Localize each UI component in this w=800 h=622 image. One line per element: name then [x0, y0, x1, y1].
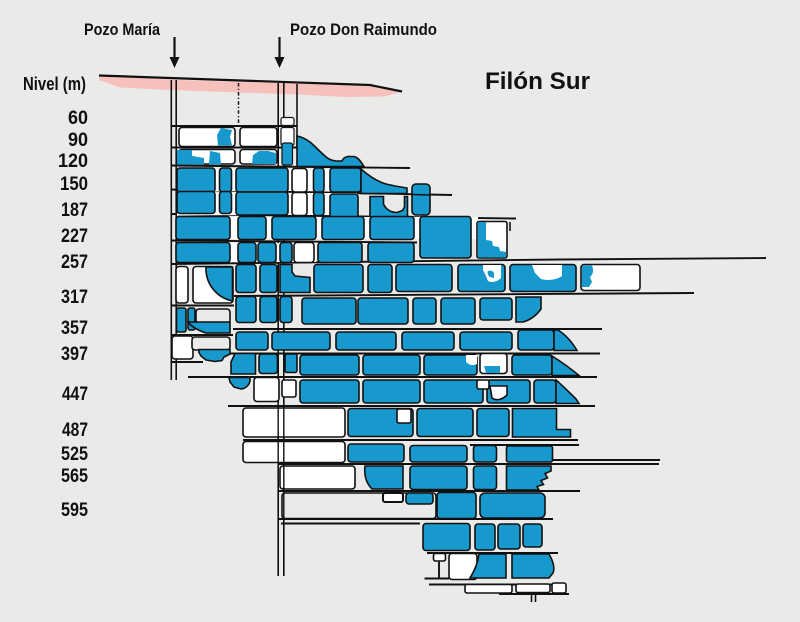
svg-text:595: 595: [61, 500, 88, 521]
svg-text:187: 187: [61, 200, 88, 221]
svg-text:Pozo Don Raimundo: Pozo Don Raimundo: [290, 20, 437, 39]
svg-text:150: 150: [60, 174, 88, 195]
svg-text:60: 60: [68, 108, 88, 129]
svg-text:397: 397: [61, 344, 88, 365]
svg-text:487: 487: [62, 420, 88, 441]
svg-text:227: 227: [61, 226, 88, 247]
svg-text:447: 447: [62, 384, 88, 405]
svg-text:90: 90: [68, 130, 88, 151]
svg-text:120: 120: [58, 151, 88, 172]
svg-text:Nivel (m): Nivel (m): [23, 74, 86, 94]
svg-text:257: 257: [61, 252, 88, 273]
svg-text:Pozo María: Pozo María: [84, 20, 160, 39]
svg-text:317: 317: [61, 287, 88, 308]
svg-text:357: 357: [61, 318, 88, 339]
svg-text:525: 525: [61, 444, 88, 465]
svg-text:565: 565: [61, 466, 88, 487]
svg-text:Filón Sur: Filón Sur: [485, 68, 590, 95]
